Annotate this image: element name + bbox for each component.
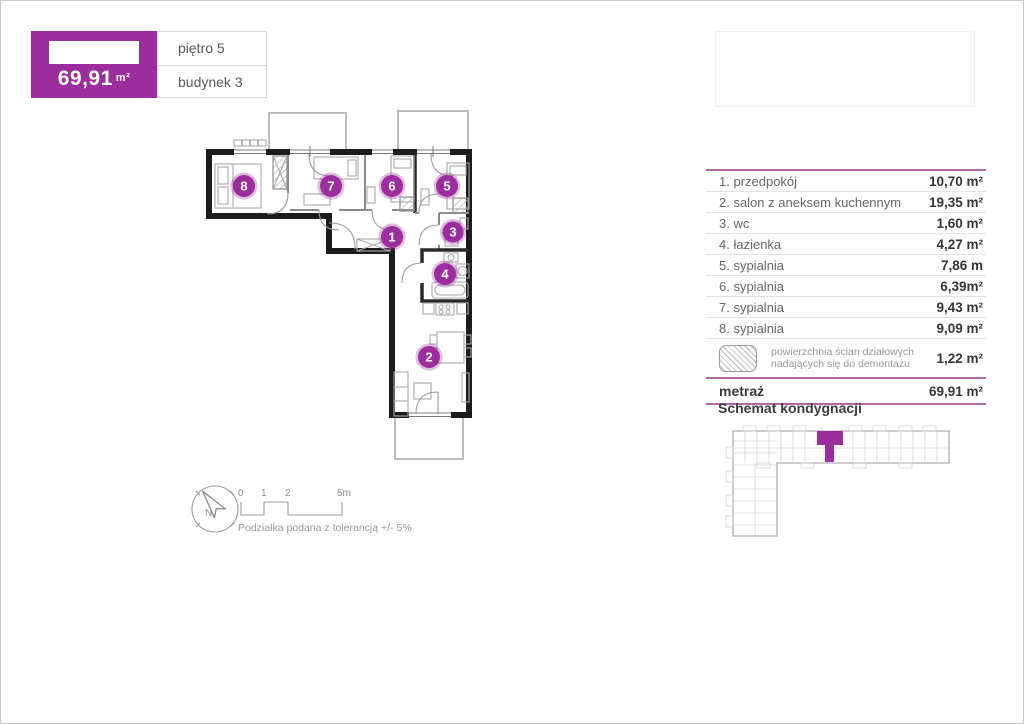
window-salon-balcony-door bbox=[409, 410, 451, 419]
table-row: 6. sypialnia6,39m² bbox=[706, 276, 986, 297]
table-row: 5. sypialnia7,86 m bbox=[706, 255, 986, 276]
legend-value: 1,22 m² bbox=[936, 351, 983, 366]
demolishable-walls-legend: powierzchnia ścian działowych nadających… bbox=[706, 339, 986, 377]
svg-text:2: 2 bbox=[285, 488, 291, 499]
floorplan-sheet: 69,91m² piętro 5 budynek 3 bbox=[0, 0, 1024, 724]
schematic-apartment-highlight bbox=[817, 431, 843, 462]
room-marker-3: 3 bbox=[440, 219, 466, 245]
wardrobe-room8 bbox=[273, 156, 287, 189]
svg-text:7: 7 bbox=[327, 179, 334, 194]
svg-text:2: 2 bbox=[425, 350, 432, 365]
balcony-bottom bbox=[395, 417, 463, 459]
legend-line2: nadających się do demontażu bbox=[771, 358, 936, 370]
table-row: 2. salon z aneksem kuchennym19,35 m² bbox=[706, 192, 986, 213]
scale-bar: 0 1 2 5m Podziałka podana z tolerancją +… bbox=[238, 488, 412, 534]
table-row: 8. sypialnia9,09 m² bbox=[706, 318, 986, 339]
window-room5-balcony-door bbox=[417, 146, 450, 157]
area-unit: m² bbox=[116, 72, 130, 84]
room-area-table: 1. przedpokój10,70 m² 2. salon z aneksem… bbox=[706, 169, 986, 405]
svg-text:8: 8 bbox=[240, 179, 247, 194]
svg-text:1: 1 bbox=[261, 488, 267, 499]
room-marker-1: 1 bbox=[379, 224, 406, 251]
floor-label: piętro 5 bbox=[158, 32, 266, 66]
partition-room5 bbox=[453, 198, 468, 213]
building-label: budynek 3 bbox=[158, 66, 266, 99]
room-marker-5: 5 bbox=[434, 173, 461, 200]
room-marker-8: 8 bbox=[231, 173, 258, 200]
apartment-area: 69,91m² bbox=[31, 67, 157, 91]
table-row: 1. przedpokój10,70 m² bbox=[706, 171, 986, 192]
window-room8 bbox=[234, 140, 266, 156]
schematic-units bbox=[733, 431, 949, 536]
svg-text:5m: 5m bbox=[337, 488, 351, 499]
svg-text:3: 3 bbox=[449, 225, 456, 240]
legend-line1: powierzchnia ścian działowych bbox=[771, 346, 936, 358]
svg-text:1: 1 bbox=[388, 230, 395, 245]
north-label: N bbox=[205, 508, 212, 519]
svg-text:5: 5 bbox=[443, 179, 450, 194]
area-value: 69,91 bbox=[58, 67, 113, 90]
room-marker-2: 2 bbox=[416, 344, 443, 371]
svg-text:4: 4 bbox=[441, 267, 449, 282]
svg-text:0: 0 bbox=[238, 488, 244, 499]
window-room6 bbox=[372, 147, 393, 156]
building-schematic bbox=[713, 421, 965, 543]
table-row: 7. sypialnia9,43 m² bbox=[706, 297, 986, 318]
developer-logo-placeholder bbox=[49, 41, 139, 64]
svg-text:6: 6 bbox=[388, 179, 395, 194]
table-row: 3. wc1,60 m² bbox=[706, 213, 986, 234]
floorplan: 8 7 6 5 1 3 4 2 N 0 1 2 5m bbox=[183, 99, 483, 539]
room-marker-4: 4 bbox=[432, 261, 459, 288]
scale-tolerance-note: Podziałka podana z tolerancją +/- 5% bbox=[238, 522, 412, 534]
table-row: 4. łazienka4,27 m² bbox=[706, 234, 986, 255]
room-marker-6: 6 bbox=[379, 173, 406, 200]
header-area-box: 69,91m² bbox=[31, 31, 157, 98]
compass: N bbox=[192, 486, 238, 532]
hatch-swatch bbox=[719, 345, 757, 372]
balcony-top-left bbox=[269, 113, 346, 150]
partition-room6 bbox=[400, 197, 414, 211]
floor-schematic-title: Schemat kondygnacji bbox=[718, 400, 862, 416]
header-info-cells: piętro 5 budynek 3 bbox=[157, 31, 267, 98]
window-room7-balcony-door bbox=[290, 146, 330, 157]
logo-placeholder-top-right bbox=[715, 31, 975, 107]
room-marker-7: 7 bbox=[318, 173, 345, 200]
balcony-top-right bbox=[398, 111, 468, 150]
